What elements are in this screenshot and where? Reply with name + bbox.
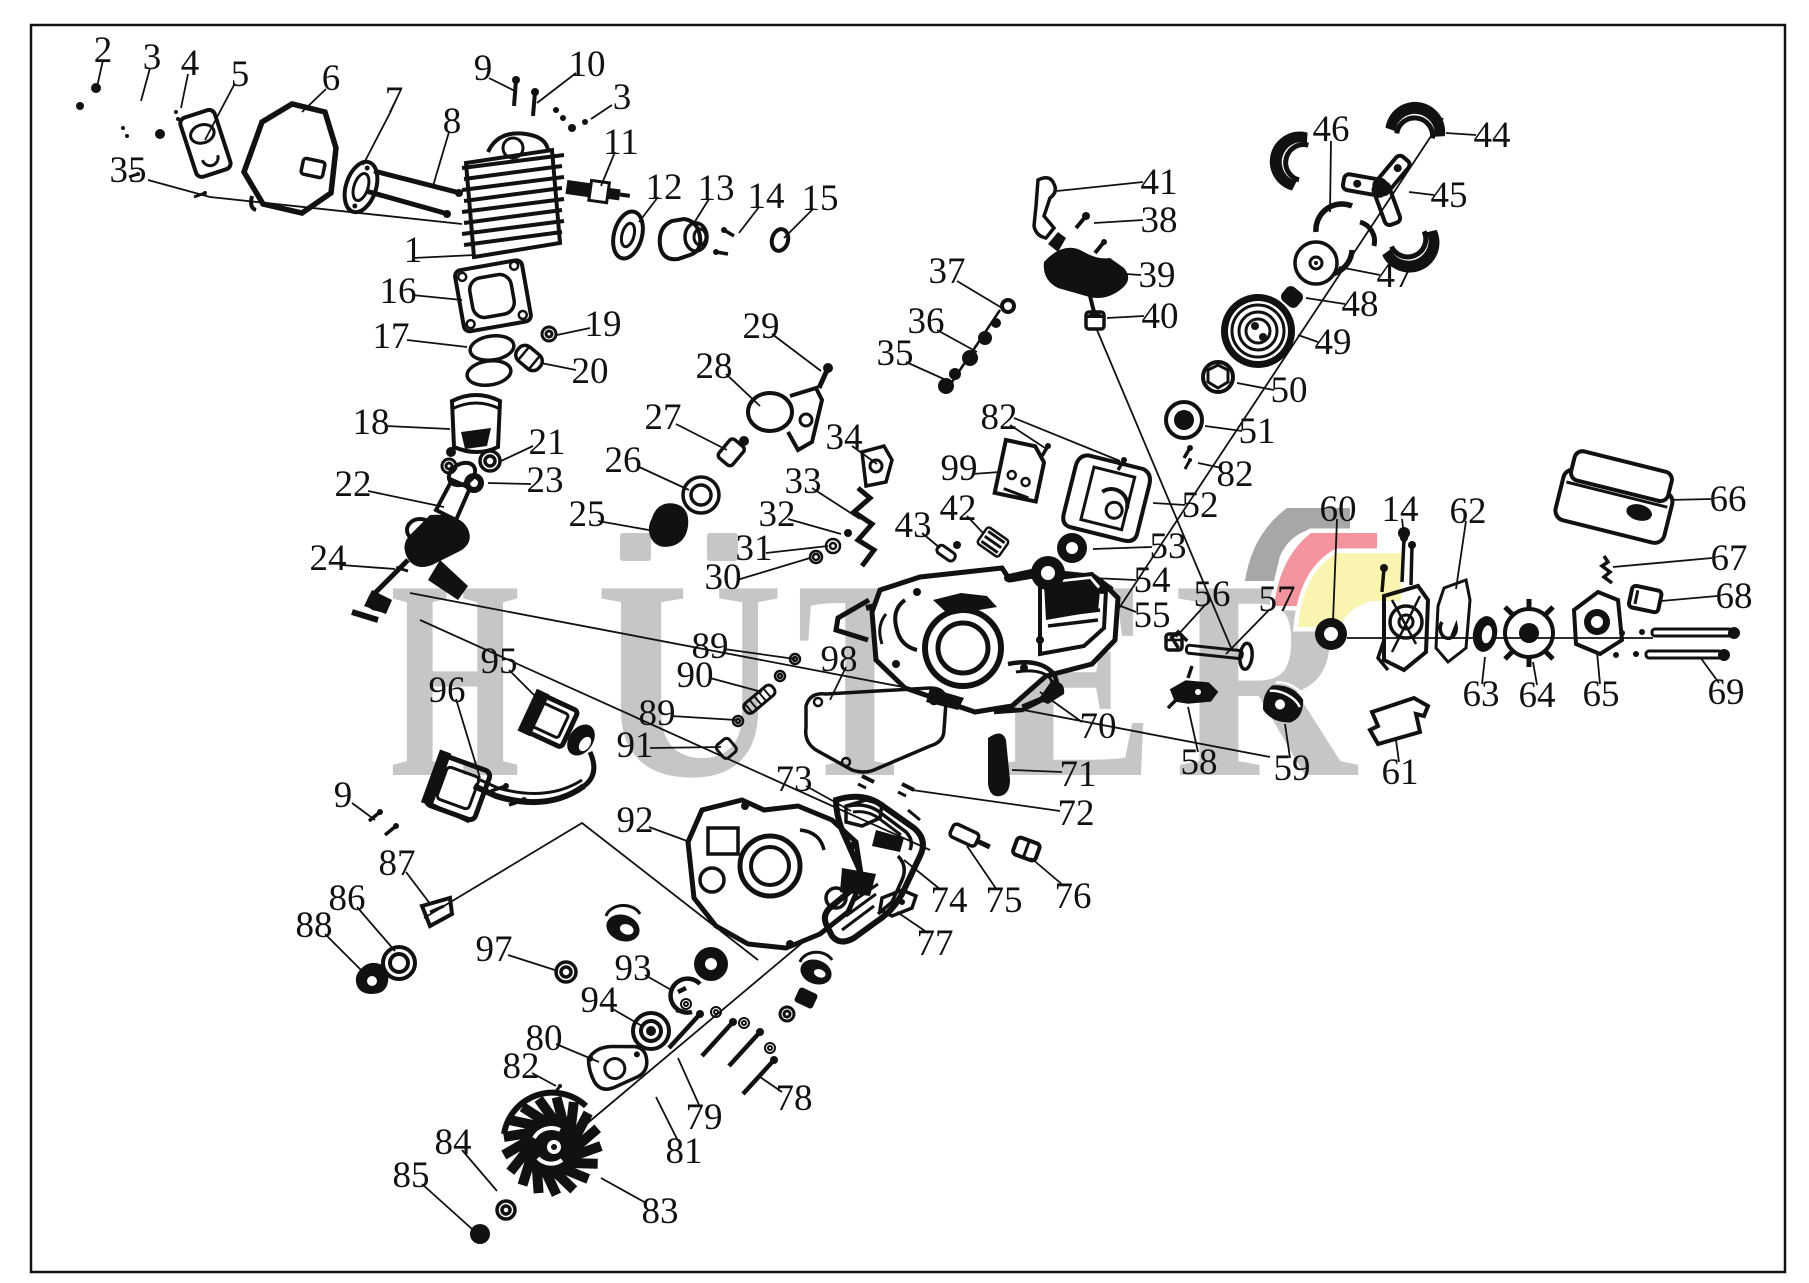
svg-text:8: 8: [443, 101, 462, 142]
svg-text:9: 9: [474, 48, 493, 89]
svg-text:25: 25: [569, 494, 606, 535]
svg-text:24: 24: [310, 538, 347, 579]
svg-text:76: 76: [1055, 876, 1092, 917]
svg-text:51: 51: [1239, 411, 1276, 452]
svg-text:56: 56: [1194, 574, 1231, 615]
svg-text:45: 45: [1431, 175, 1468, 216]
svg-text:26: 26: [605, 440, 642, 481]
svg-text:92: 92: [617, 800, 654, 841]
svg-text:88: 88: [296, 905, 333, 946]
svg-text:28: 28: [696, 346, 733, 387]
svg-text:21: 21: [529, 422, 566, 463]
svg-text:20: 20: [572, 351, 609, 392]
svg-text:29: 29: [743, 306, 780, 347]
svg-text:18: 18: [353, 402, 390, 443]
svg-text:77: 77: [917, 923, 954, 964]
svg-text:27: 27: [645, 397, 682, 438]
svg-text:15: 15: [802, 178, 839, 219]
svg-text:22: 22: [335, 464, 372, 505]
svg-text:78: 78: [776, 1078, 813, 1119]
svg-text:83: 83: [642, 1191, 679, 1232]
svg-text:87: 87: [379, 843, 416, 884]
svg-text:82: 82: [1217, 454, 1254, 495]
svg-text:40: 40: [1142, 296, 1179, 337]
svg-text:9: 9: [334, 775, 353, 816]
svg-text:75: 75: [986, 880, 1023, 921]
svg-text:82: 82: [503, 1046, 540, 1087]
svg-text:68: 68: [1716, 576, 1753, 617]
svg-text:72: 72: [1058, 793, 1095, 834]
svg-text:38: 38: [1141, 200, 1178, 241]
svg-text:14: 14: [748, 176, 785, 217]
svg-text:94: 94: [581, 980, 618, 1021]
svg-text:95: 95: [481, 641, 518, 682]
svg-text:63: 63: [1463, 674, 1500, 715]
svg-text:61: 61: [1382, 752, 1419, 793]
svg-text:69: 69: [1708, 672, 1745, 713]
svg-text:12: 12: [646, 167, 683, 208]
svg-text:93: 93: [615, 948, 652, 989]
svg-text:19: 19: [585, 304, 622, 345]
svg-text:6: 6: [322, 58, 341, 99]
svg-text:23: 23: [527, 460, 564, 501]
svg-text:4: 4: [181, 43, 200, 84]
svg-text:90: 90: [677, 655, 714, 696]
svg-text:59: 59: [1274, 748, 1311, 789]
svg-text:11: 11: [603, 122, 639, 163]
svg-text:7: 7: [385, 80, 404, 121]
svg-text:34: 34: [826, 417, 863, 458]
svg-text:47: 47: [1377, 255, 1414, 296]
svg-text:48: 48: [1342, 284, 1379, 325]
svg-text:30: 30: [705, 557, 742, 598]
svg-text:82: 82: [981, 397, 1018, 438]
svg-text:35: 35: [877, 333, 914, 374]
svg-text:74: 74: [931, 880, 968, 921]
svg-text:91: 91: [617, 725, 654, 766]
svg-text:44: 44: [1474, 115, 1511, 156]
svg-text:5: 5: [231, 54, 250, 95]
svg-text:43: 43: [895, 505, 932, 546]
svg-text:3: 3: [143, 37, 162, 78]
svg-text:84: 84: [435, 1122, 472, 1163]
svg-text:96: 96: [429, 670, 466, 711]
svg-text:65: 65: [1583, 674, 1620, 715]
svg-text:41: 41: [1141, 162, 1178, 203]
svg-text:98: 98: [821, 639, 858, 680]
svg-text:60: 60: [1320, 489, 1357, 530]
svg-text:16: 16: [380, 271, 417, 312]
svg-text:62: 62: [1450, 491, 1487, 532]
svg-text:37: 37: [929, 251, 966, 292]
svg-text:13: 13: [698, 168, 735, 209]
svg-text:73: 73: [776, 759, 813, 800]
svg-text:52: 52: [1182, 485, 1219, 526]
svg-text:64: 64: [1519, 675, 1556, 716]
svg-text:81: 81: [666, 1131, 703, 1172]
svg-text:17: 17: [373, 316, 410, 357]
svg-text:57: 57: [1259, 579, 1296, 620]
svg-text:70: 70: [1080, 706, 1117, 747]
svg-text:50: 50: [1271, 370, 1308, 411]
svg-text:67: 67: [1711, 538, 1748, 579]
svg-text:71: 71: [1060, 754, 1097, 795]
svg-text:49: 49: [1315, 322, 1352, 363]
svg-text:1: 1: [404, 230, 423, 271]
svg-text:3: 3: [613, 77, 632, 118]
svg-text:85: 85: [393, 1155, 430, 1196]
svg-text:42: 42: [940, 488, 977, 529]
svg-text:55: 55: [1134, 595, 1171, 636]
svg-text:39: 39: [1139, 255, 1176, 296]
svg-text:14: 14: [1382, 489, 1419, 530]
svg-text:86: 86: [329, 878, 366, 919]
svg-text:66: 66: [1710, 479, 1747, 520]
svg-text:2: 2: [94, 30, 113, 71]
svg-text:35: 35: [110, 150, 147, 191]
svg-text:58: 58: [1181, 742, 1218, 783]
svg-text:97: 97: [476, 929, 513, 970]
svg-text:46: 46: [1313, 109, 1350, 150]
svg-text:99: 99: [941, 448, 978, 489]
svg-text:10: 10: [569, 44, 606, 85]
